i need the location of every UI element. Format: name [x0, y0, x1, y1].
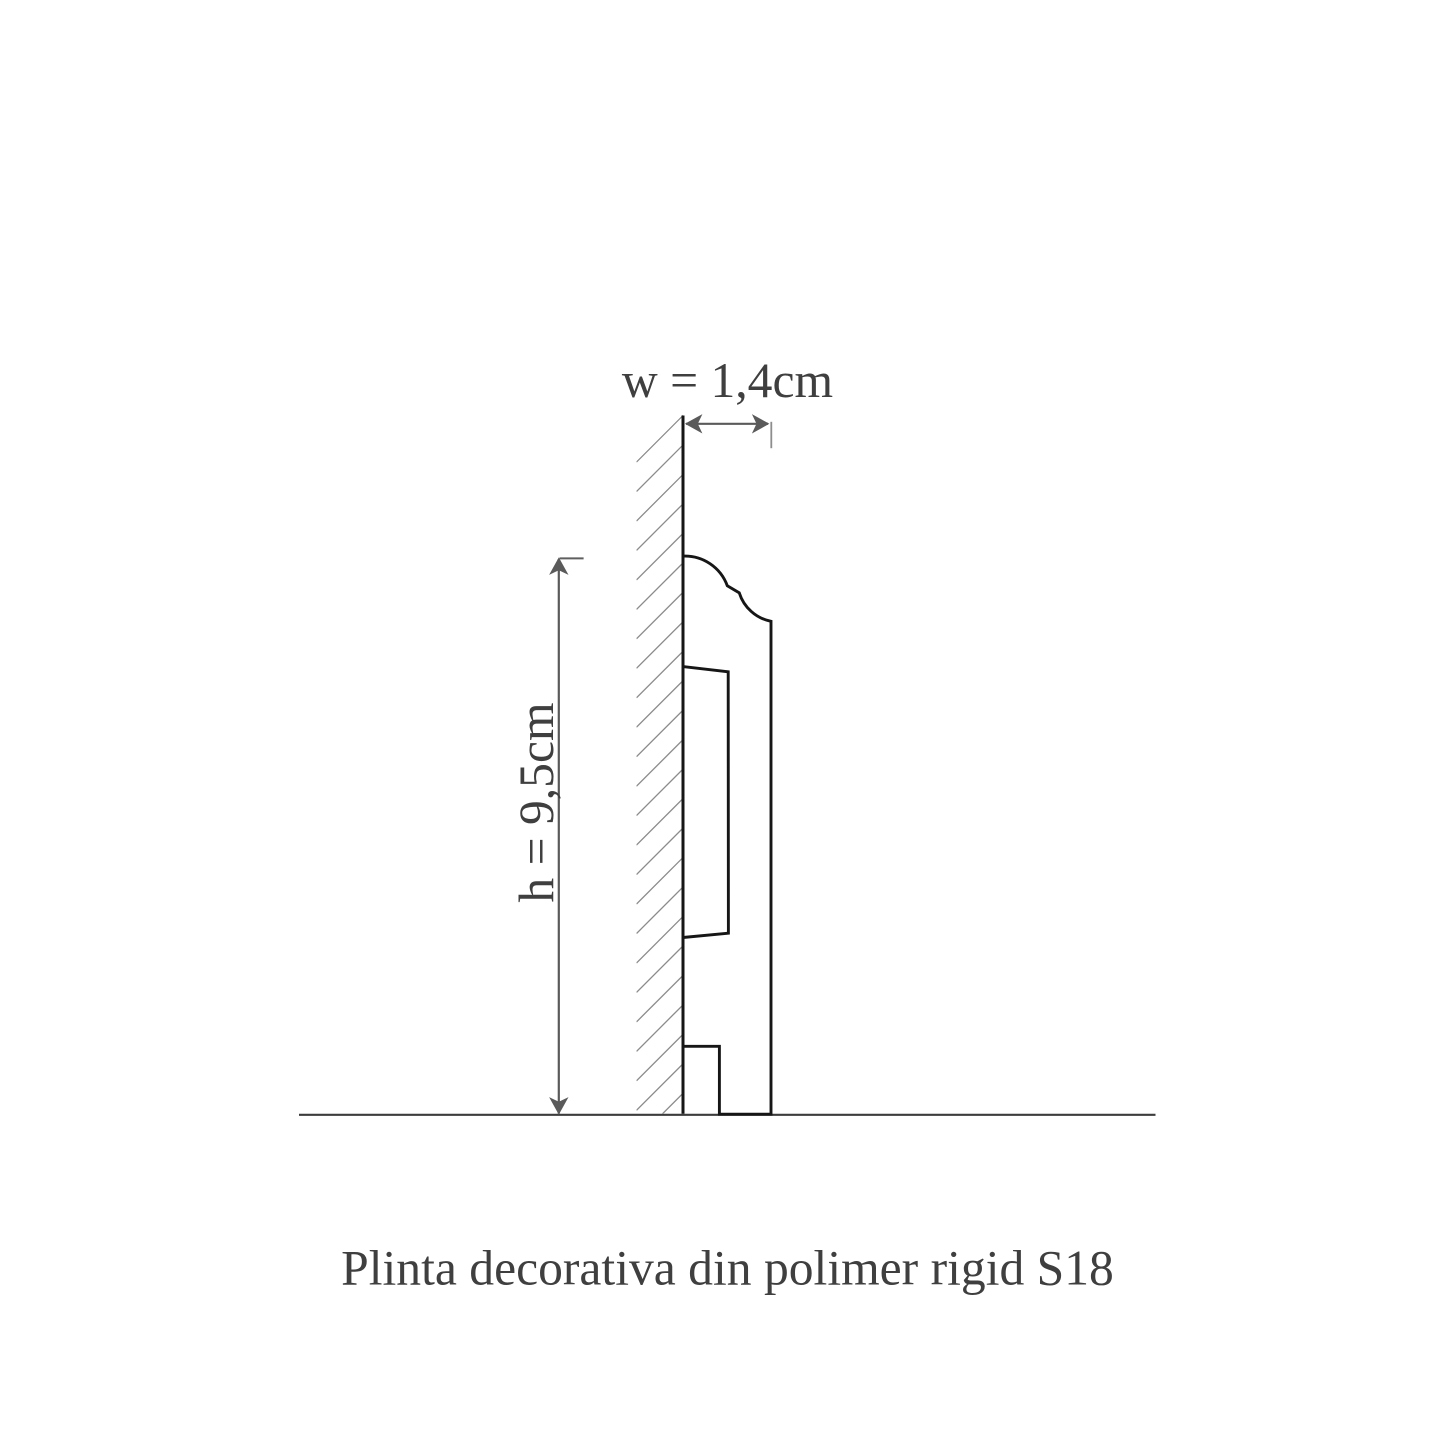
svg-text:Plinta decorativa din polimer: Plinta decorativa din polimer rigid S18	[341, 1241, 1114, 1296]
svg-text:h = 9,5cm: h = 9,5cm	[509, 702, 564, 902]
svg-text:w = 1,4cm: w = 1,4cm	[622, 353, 833, 408]
